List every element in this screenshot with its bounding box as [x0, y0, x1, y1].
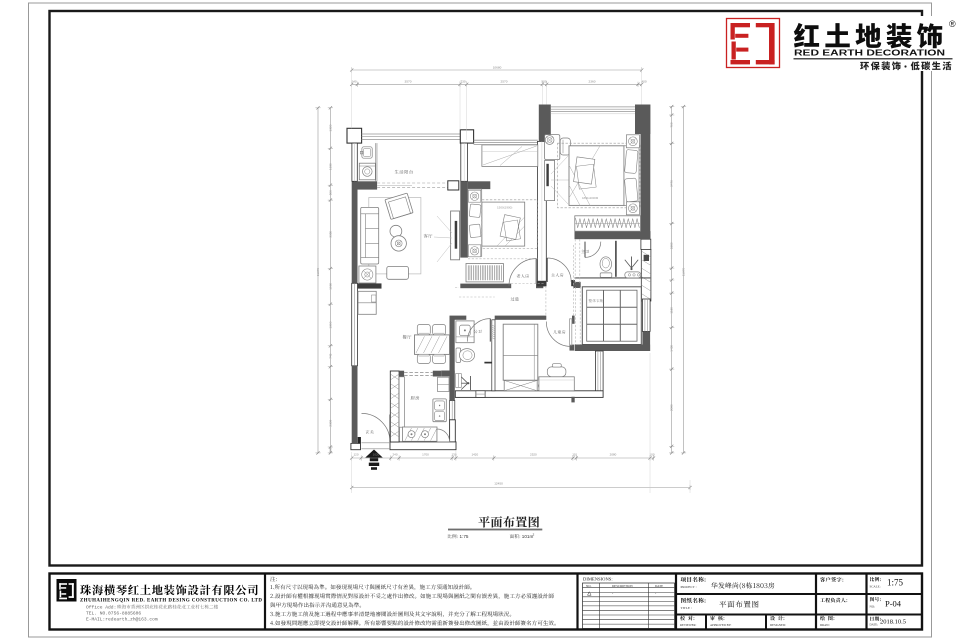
svg-text:280: 280 [328, 447, 332, 452]
svg-text:2308: 2308 [328, 419, 332, 426]
svg-text:1550: 1550 [670, 242, 674, 249]
svg-text:745: 745 [328, 353, 332, 358]
svg-text:2570: 2570 [501, 80, 508, 84]
svg-text:DATE:: DATE: [870, 623, 879, 627]
svg-text:1020: 1020 [373, 452, 380, 456]
svg-text:240: 240 [351, 80, 356, 84]
svg-text:SCALE:: SCALE: [870, 585, 881, 589]
svg-text:1900: 1900 [328, 321, 332, 328]
svg-text:400: 400 [641, 80, 646, 84]
svg-text:1420: 1420 [670, 345, 674, 352]
svg-text:1320: 1320 [328, 124, 332, 131]
svg-text:ZHUHAIHENGQIN RED. EARTH DESIN: ZHUHAIHENGQIN RED. EARTH DESING CONSTRUC… [80, 598, 262, 603]
svg-text:3470: 3470 [670, 180, 674, 187]
svg-text:11970: 11970 [316, 268, 320, 277]
svg-text:PROJECT :: PROJECT : [681, 585, 697, 589]
svg-text:100: 100 [649, 452, 654, 456]
svg-text:2080: 2080 [610, 452, 617, 456]
svg-text:2: 2 [533, 533, 535, 537]
svg-text:1420: 1420 [471, 452, 478, 456]
svg-text:110: 110 [572, 452, 577, 456]
svg-text:NO:: NO: [870, 605, 876, 609]
svg-text:NO.: NO. [586, 584, 592, 588]
svg-text:1700: 1700 [422, 452, 429, 456]
svg-text:3350: 3350 [328, 231, 332, 238]
svg-text:1500(1900): 1500(1900) [497, 206, 512, 210]
svg-text:2520: 2520 [530, 452, 537, 456]
svg-text:10680: 10680 [493, 65, 502, 69]
svg-text:1800x2000M: 1800x2000M [582, 196, 599, 200]
svg-text:DRAW:: DRAW: [820, 623, 830, 627]
svg-text:APPROVED BY:: APPROVED BY: [710, 623, 732, 627]
svg-text:1150: 1150 [670, 307, 674, 314]
svg-text:DATE: DATE [655, 584, 663, 588]
svg-text:1:75: 1:75 [887, 578, 904, 588]
svg-text:TITLE :: TITLE : [681, 606, 692, 610]
svg-text:DESIGNED:: DESIGNED: [770, 623, 786, 627]
svg-text:E-MAIL:redearth_zh@163.com: E-MAIL:redearth_zh@163.com [86, 617, 158, 623]
svg-text:2018.10.5: 2018.10.5 [880, 619, 906, 626]
svg-text:®: ® [949, 19, 956, 29]
svg-text:P-04: P-04 [885, 599, 902, 609]
svg-text:1:75: 1:75 [460, 534, 469, 539]
svg-text:1060: 1060 [328, 283, 332, 290]
svg-text:Office Add:: Office Add: [86, 605, 116, 611]
svg-text:12450: 12450 [494, 482, 503, 486]
svg-text:730: 730 [460, 80, 465, 84]
svg-text:REVIEWER:: REVIEWER: [680, 623, 696, 627]
svg-text:-: - [612, 592, 614, 596]
svg-text:2360: 2360 [589, 80, 596, 84]
svg-text:RED EARTH DECORATION: RED EARTH DECORATION [794, 49, 945, 58]
svg-text:11970: 11970 [682, 268, 686, 277]
svg-text:1330: 1330 [328, 163, 332, 170]
svg-text:-: - [655, 592, 657, 596]
svg-text:DIMENSIONS:: DIMENSIONS: [583, 577, 613, 582]
svg-text:120: 120 [353, 452, 358, 456]
svg-text:TEL. NO.0756-8885606: TEL. NO.0756-8885606 [86, 611, 141, 617]
svg-text:2080: 2080 [670, 404, 674, 411]
svg-text:3570: 3570 [405, 80, 412, 84]
svg-text:700: 700 [670, 122, 674, 127]
svg-text:500: 500 [328, 190, 332, 195]
svg-text:DESCRIPTION: DESCRIPTION [612, 584, 633, 588]
svg-text:240: 240 [392, 452, 397, 456]
